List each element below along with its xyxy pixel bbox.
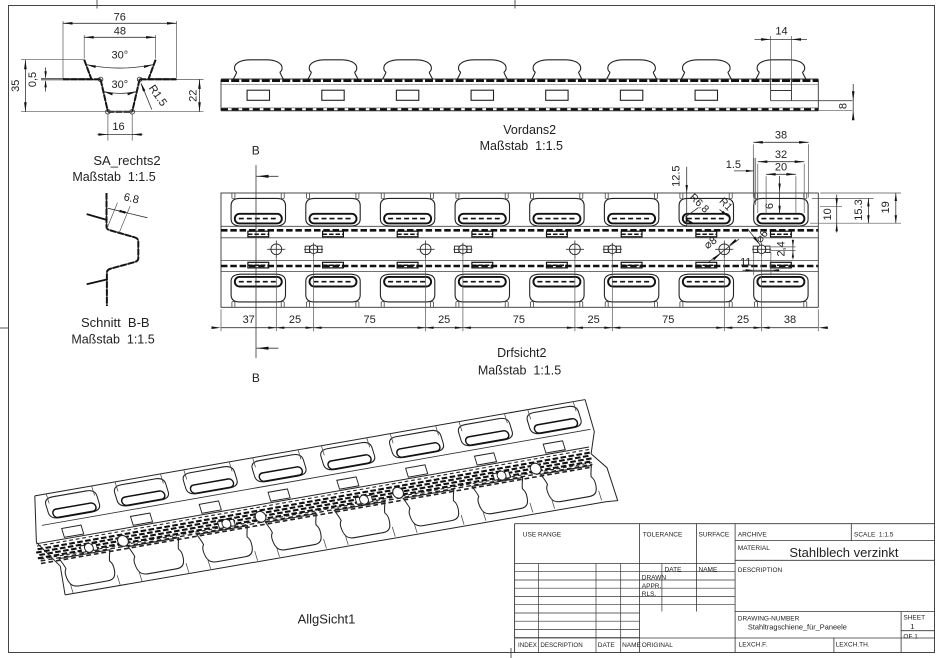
svg-text:DATE: DATE — [665, 567, 683, 574]
svg-text:SHEET: SHEET — [903, 615, 925, 622]
svg-text:30°: 30° — [111, 79, 128, 91]
svg-text:Maßstab 1:1.5: Maßstab 1:1.5 — [71, 333, 154, 347]
svg-text:Maßstab 1:1.5: Maßstab 1:1.5 — [478, 364, 561, 378]
svg-text:0,5: 0,5 — [27, 72, 39, 87]
svg-text:32: 32 — [775, 149, 787, 161]
svg-text:Schnitt B-B: Schnitt B-B — [81, 315, 150, 330]
svg-text:SCALE 1:1.5: SCALE 1:1.5 — [854, 532, 894, 539]
svg-text:38: 38 — [784, 314, 796, 326]
svg-text:12.5: 12.5 — [670, 165, 682, 186]
svg-text:20: 20 — [775, 162, 787, 174]
svg-text:ARCHIVE: ARCHIVE — [738, 532, 768, 539]
svg-text:OF 1: OF 1 — [903, 633, 918, 640]
svg-text:B: B — [252, 371, 260, 385]
svg-text:25: 25 — [587, 314, 599, 326]
svg-text:ORIGINAL: ORIGINAL — [642, 642, 673, 649]
svg-text:Stahltragschiene_für_Paneele: Stahltragschiene_für_Paneele — [748, 622, 847, 631]
svg-text:75: 75 — [363, 314, 375, 326]
svg-text:DESCRIPTION: DESCRIPTION — [540, 642, 582, 649]
svg-text:Maßstab 1:1.5: Maßstab 1:1.5 — [480, 139, 563, 153]
svg-text:25: 25 — [438, 314, 450, 326]
svg-text:10: 10 — [822, 208, 834, 220]
svg-text:SA_rechts2: SA_rechts2 — [93, 153, 160, 168]
svg-text:16: 16 — [112, 121, 124, 133]
svg-text:75: 75 — [513, 314, 525, 326]
svg-text:35: 35 — [10, 80, 22, 92]
svg-text:Maßstab 1:1.5: Maßstab 1:1.5 — [72, 170, 155, 184]
svg-text:Vordans2: Vordans2 — [503, 123, 556, 137]
svg-text:DRAWING-NUMBER: DRAWING-NUMBER — [738, 615, 800, 622]
svg-text:38: 38 — [775, 130, 787, 142]
svg-text:USE RANGE: USE RANGE — [523, 532, 562, 539]
svg-text:30°: 30° — [111, 50, 128, 62]
svg-text:11: 11 — [740, 257, 751, 269]
svg-text:INDEX: INDEX — [518, 642, 537, 649]
svg-text:NAME: NAME — [699, 567, 718, 574]
svg-text:AllgSicht1: AllgSicht1 — [298, 612, 356, 627]
svg-text:76: 76 — [114, 12, 126, 24]
svg-text:LEXCH.F.: LEXCH.F. — [739, 641, 768, 648]
svg-text:25: 25 — [289, 314, 301, 326]
svg-text:25: 25 — [737, 314, 749, 326]
svg-text:DATE: DATE — [598, 642, 616, 649]
svg-text:NAME: NAME — [622, 642, 641, 649]
svg-text:Stahlblech verzinkt: Stahlblech verzinkt — [789, 545, 898, 560]
svg-text:37: 37 — [243, 314, 255, 326]
svg-text:LEXCH.TH.: LEXCH.TH. — [836, 641, 870, 648]
svg-text:22: 22 — [188, 90, 200, 102]
svg-text:B: B — [252, 144, 260, 158]
svg-text:DRAWN: DRAWN — [642, 575, 667, 582]
svg-text:TOLERANCE: TOLERANCE — [643, 532, 683, 539]
svg-text:75: 75 — [662, 314, 674, 326]
svg-text:6: 6 — [764, 203, 776, 209]
svg-text:DESCRIPTION: DESCRIPTION — [738, 567, 783, 574]
svg-text:SURFACE: SURFACE — [699, 532, 730, 539]
svg-text:14: 14 — [775, 26, 787, 38]
svg-text:1.5: 1.5 — [726, 159, 741, 171]
svg-text:MATERIAL: MATERIAL — [738, 545, 770, 552]
svg-text:APPR.: APPR. — [642, 583, 662, 590]
svg-text:15.3: 15.3 — [853, 199, 865, 220]
svg-text:48: 48 — [114, 26, 126, 38]
svg-text:1: 1 — [910, 622, 914, 631]
svg-text:8: 8 — [838, 103, 850, 109]
svg-text:2,4: 2,4 — [775, 241, 787, 256]
svg-text:19: 19 — [880, 201, 892, 213]
svg-text:Drfsicht2: Drfsicht2 — [497, 346, 546, 360]
svg-text:RLS.: RLS. — [642, 591, 657, 598]
